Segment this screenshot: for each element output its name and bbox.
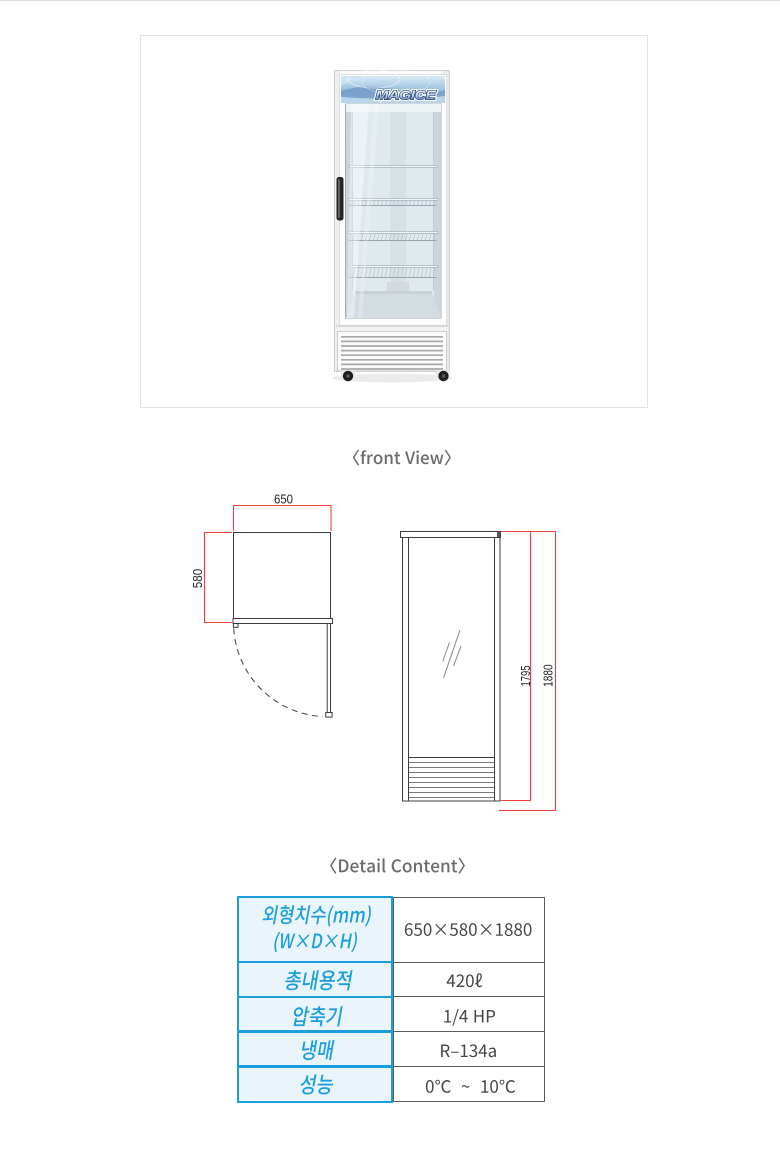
svg-text:580: 580 — [190, 569, 205, 589]
svg-text:1795: 1795 — [518, 666, 533, 687]
svg-text:650: 650 — [274, 492, 293, 507]
svg-text:1880: 1880 — [540, 664, 555, 687]
